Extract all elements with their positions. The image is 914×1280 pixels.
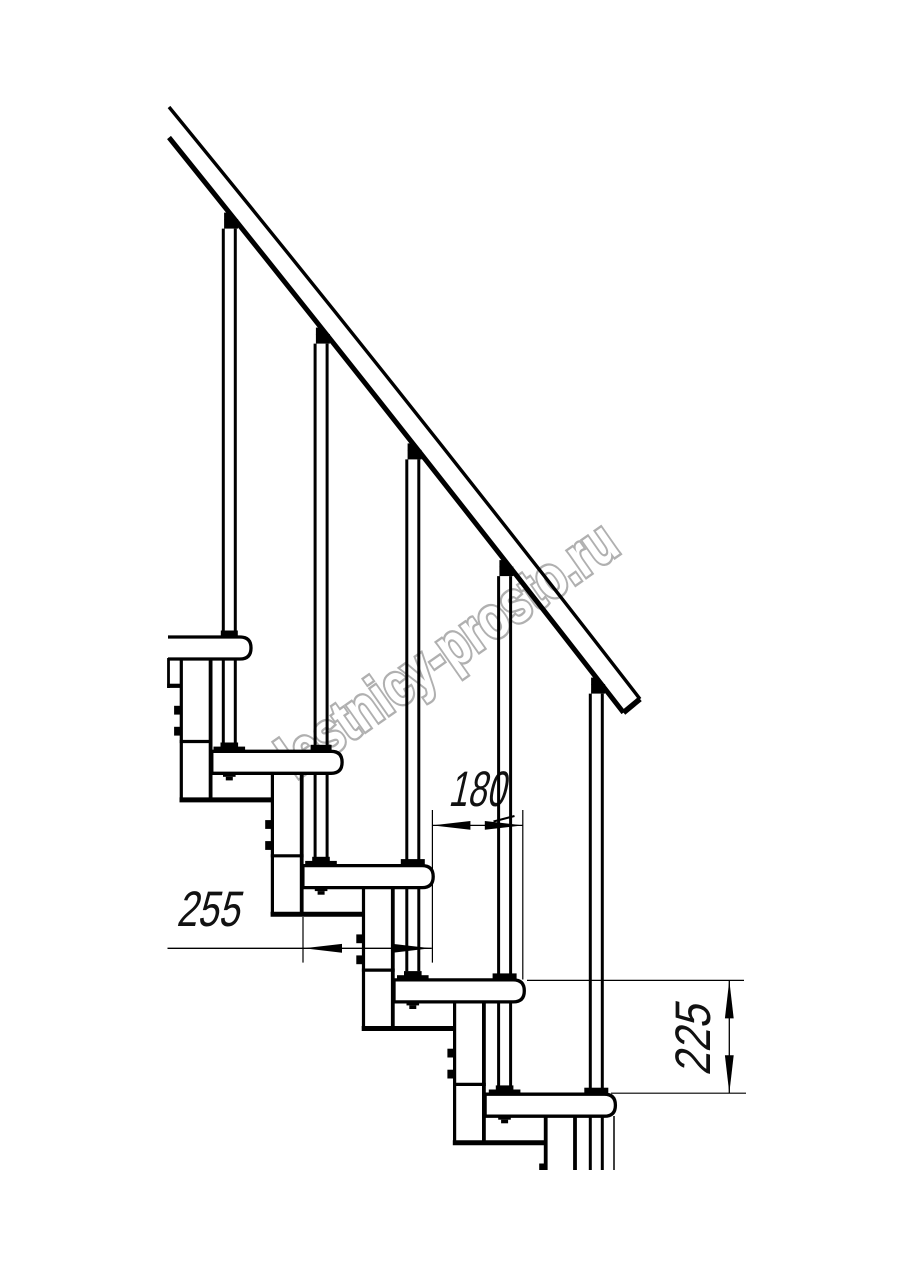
svg-text:225: 225	[666, 995, 722, 1078]
svg-text:180: 180	[445, 762, 515, 818]
svg-text:255: 255	[173, 882, 249, 938]
